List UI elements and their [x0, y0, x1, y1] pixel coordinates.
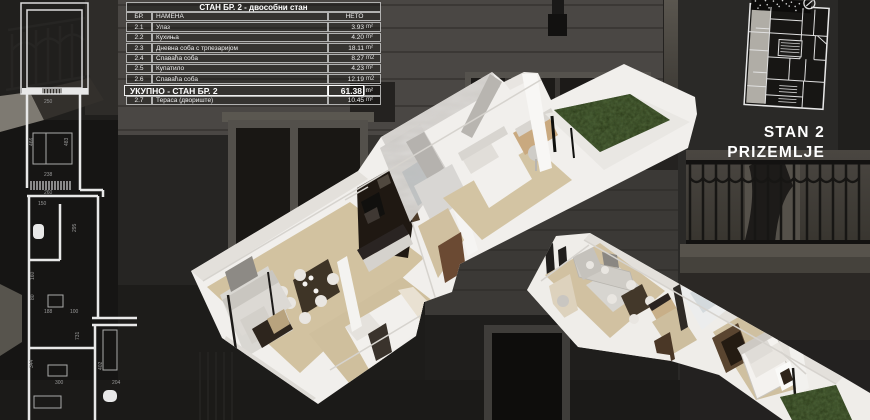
- svg-text:238: 238: [44, 172, 53, 178]
- svg-text:160: 160: [30, 271, 36, 280]
- svg-text:295: 295: [72, 223, 78, 232]
- svg-text:80: 80: [30, 294, 36, 300]
- svg-text:188: 188: [44, 309, 53, 315]
- svg-text:300: 300: [55, 380, 64, 386]
- svg-text:260: 260: [44, 190, 53, 196]
- svg-text:250: 250: [44, 99, 53, 105]
- svg-text:100: 100: [70, 309, 79, 315]
- svg-text:402: 402: [98, 361, 104, 370]
- svg-text:150: 150: [38, 201, 47, 207]
- svg-text:204: 204: [112, 380, 121, 386]
- svg-text:344: 344: [29, 359, 35, 368]
- svg-text:731: 731: [75, 331, 81, 340]
